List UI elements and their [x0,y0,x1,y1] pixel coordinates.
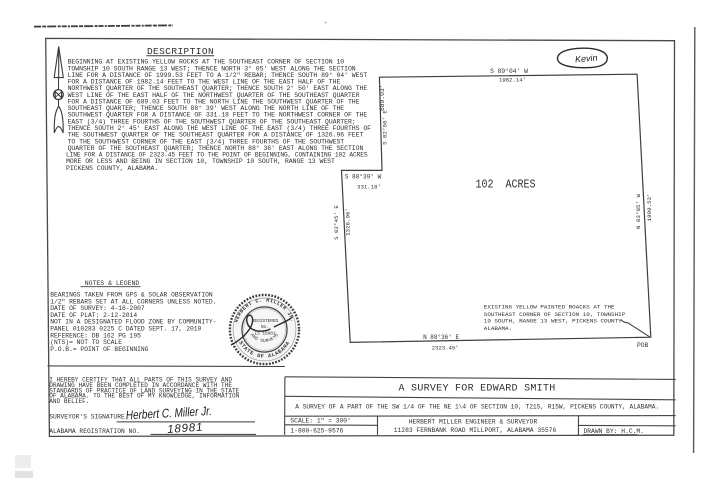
svg-text:ALABAMA REGISTRATION NO.: ALABAMA REGISTRATION NO. [49,428,140,435]
svg-text:Kevin: Kevin [575,53,598,65]
svg-text:S 02°50' E: S 02°50' E [381,110,388,145]
svg-text:REGISTERED: REGISTERED [252,319,279,324]
svg-text:1326.96': 1326.96' [344,208,351,236]
svg-text:A SURVEY FOR EDWARD SMITH: A SURVEY FOR EDWARD SMITH [398,383,555,394]
svg-text:AND BELIEF.: AND BELIEF. [49,398,89,405]
svg-text:N 88°36' E: N 88°36' E [423,334,459,341]
svg-text:689.03': 689.03' [379,85,386,111]
svg-text:S 88°39' W: S 88°39' W [345,174,382,181]
svg-text:EXISTING YELLOW PAINTED ROACKS: EXISTING YELLOW PAINTED ROACKS AT THE [484,304,615,311]
svg-text:N 03°05' W: N 03°05' W [635,193,642,229]
svg-text:LS 18981: LS 18981 [254,332,275,337]
svg-text:POB: POB [637,342,649,349]
svg-text:P.O.B.= POINT OF BEGINNING: P.O.B.= POINT OF BEGINNING [50,346,148,353]
svg-text:S 02°45' E: S 02°45' E [333,205,340,240]
svg-text:No.: No. [261,325,269,330]
svg-text:SURVEYOR'S SIGNATURE: SURVEYOR'S SIGNATURE [49,413,125,420]
svg-text:102 ACRES: 102 ACRES [476,179,536,192]
svg-text:NOTES & LEGEND: NOTES & LEGEND [85,280,140,287]
svg-text:10 SOUTH, RANGE 13 WEST, PICKE: 10 SOUTH, RANGE 13 WEST, PICKENS COUNTY [484,318,622,325]
svg-text:SCALE: 1" = 300': SCALE: 1" = 300' [290,418,350,425]
svg-text:DRAWN BY: H.C.M.: DRAWN BY: H.C.M. [584,428,644,435]
svg-text:1999.53': 1999.53' [646,193,653,221]
svg-text:1982.14': 1982.14' [499,77,526,84]
svg-text:11283 FERNBANK ROAD MILLPORT,: 11283 FERNBANK ROAD MILLPORT, ALABAMA 35… [394,427,557,434]
svg-text:ALABAMA.: ALABAMA. [484,325,512,332]
svg-text:2323.45': 2323.45' [432,344,459,351]
svg-text:HERBERT MILLER ENGINEER & SURV: HERBERT MILLER ENGINEER & SURVEYOR [409,418,538,425]
svg-text:1-800-625-9576: 1-800-625-9576 [290,427,343,434]
svg-text:331.18': 331.18' [357,183,381,190]
svg-text:S 89°04' W: S 89°04' W [490,67,528,75]
svg-text:18981: 18981 [167,422,204,436]
svg-text:A SURVEY OF A PART OF THE SW 1: A SURVEY OF A PART OF THE SW 1/4 OF THE … [295,403,659,410]
svg-text:PICKENS COUNTY, ALABAMA.: PICKENS COUNTY, ALABAMA. [66,165,158,172]
